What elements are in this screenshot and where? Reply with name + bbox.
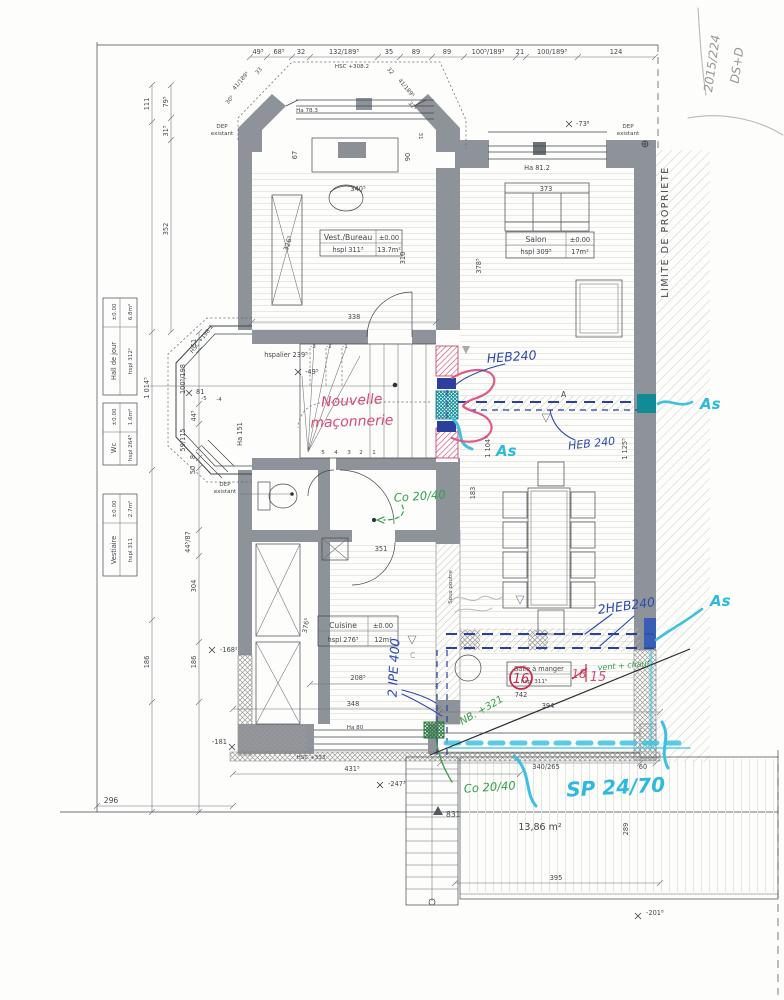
dim-label: 60 — [639, 763, 647, 771]
room-area: 2.7m² — [127, 501, 134, 518]
room-hspl: hspl 309⁵ — [521, 248, 552, 256]
dep-label: DEP — [622, 124, 634, 130]
note-new-masonry-1: Nouvelle — [321, 391, 383, 410]
dim-label: 100⁵/189³ — [472, 48, 505, 56]
room-box-bureau: Vest./Bureau ±0.00 hspl 311³ 13.7m² — [320, 230, 402, 256]
spot-level: -247³ — [388, 780, 406, 788]
dim-label: 1 104⁵ — [484, 436, 492, 458]
dim-label: 1 125⁵ — [621, 438, 629, 460]
dim-label: 31 — [417, 132, 423, 140]
dim-label: 378⁵ — [475, 258, 483, 274]
dim-label: 340/265 — [532, 763, 559, 771]
dim-label: 394 — [542, 702, 555, 710]
room-name: Salon — [525, 235, 546, 244]
room-area: 1.6m² — [127, 409, 134, 426]
spot-level: 81 — [196, 388, 204, 396]
dim-label: 348 — [347, 700, 360, 708]
room-area: 6.8m² — [127, 304, 134, 321]
dim-label: 89 — [443, 48, 451, 56]
dim-label: 296 — [104, 796, 119, 805]
room-area: 17m² — [571, 248, 589, 256]
dim-label: 376⁵ — [301, 617, 312, 634]
dep-label: existant — [617, 131, 640, 137]
dim-label: 79⁵ — [162, 96, 170, 107]
note-red-16: 16 — [513, 672, 530, 687]
height-label: Ha 151 — [236, 422, 244, 446]
dim-label: 183 — [469, 487, 477, 500]
room-box-vestiaire: Vestiaire hspl 311 ±0.00 2.7m² — [103, 494, 137, 576]
floor-plan-drawing: LIMITE DE PROPRIETE — [0, 0, 784, 1000]
spot-level: -73⁸ — [576, 120, 590, 128]
dim-label: 44⁵ — [190, 410, 198, 421]
room-level: ±0.00 — [112, 500, 118, 518]
marker-letter: C — [410, 651, 415, 660]
dim-label: 30⁵ — [224, 94, 235, 106]
dim-label: 310 — [399, 252, 407, 265]
room-hspl: hspl 311³ — [333, 246, 364, 254]
dim-label: 8 — [189, 455, 197, 459]
dim-label: 1 014⁵ — [143, 377, 151, 399]
staircase — [150, 344, 436, 458]
stair-number: -2 — [326, 344, 332, 350]
room-level: ±0.00 — [570, 236, 590, 244]
dim-label: 289 — [622, 823, 630, 836]
marker-letter: A — [561, 390, 567, 399]
spot-level: -181 — [212, 738, 227, 746]
dep-label: DEP — [216, 124, 228, 130]
dim-label: 351 — [375, 545, 388, 553]
dim-label: 338 — [348, 313, 361, 321]
stair-number: 1 — [372, 450, 376, 456]
dim-label: 208⁵ — [350, 674, 366, 682]
room-level: ±0.00 — [112, 303, 118, 321]
height-label: Ha 80 — [347, 725, 364, 731]
stair-number: 2 — [359, 450, 363, 456]
spot-level: 831 — [446, 810, 461, 819]
dim-label: 32⁵ — [406, 100, 417, 112]
dim-label: 32 — [385, 67, 394, 76]
dim-label: 742 — [515, 691, 528, 699]
room-level: ±0.00 — [379, 234, 399, 242]
stair-number: -5 — [201, 396, 207, 402]
room-hspl: hspl 312¹ — [127, 348, 134, 374]
stair-number: -4 — [216, 397, 222, 403]
room-box-hall: Hall de jour hspl 312¹ ±0.00 6.8m² — [103, 298, 137, 395]
dim-label: 21 — [516, 48, 524, 56]
dim-label: 100/189³ — [537, 48, 567, 56]
corner-ref-note: 2015/224 — [701, 34, 723, 93]
note-red-15: 15 — [590, 670, 607, 685]
dim-label: 59/115 — [179, 428, 187, 451]
dep-label: existant — [214, 489, 237, 495]
room-name: Vestiaire — [110, 536, 118, 564]
dim-label: 340⁵ — [350, 185, 366, 193]
terrace-area-label: 13,86 m² — [518, 822, 561, 833]
dim-label: 124 — [610, 48, 623, 56]
dim-label: 132/189⁵ — [329, 48, 359, 56]
room-level: ±0.00 — [373, 622, 393, 630]
dim-label: 31⁵ — [162, 125, 170, 136]
dim-label: 50 — [189, 466, 197, 474]
dep-label: DEP — [219, 482, 231, 488]
spot-level: -201⁸ — [646, 909, 664, 917]
dim-label: 111 — [143, 98, 151, 111]
dim-label: 373 — [540, 185, 553, 193]
note-as-2: As — [699, 395, 721, 413]
dep-label: existant — [211, 131, 234, 137]
room-name: Cuisine — [329, 621, 357, 630]
note-new-masonry-2: maçonnerie — [310, 413, 394, 432]
dim-label: 352 — [162, 223, 170, 236]
note-2ipe400: 2 IPE 400 — [384, 638, 402, 698]
height-label: HSC +308.2 — [335, 64, 369, 70]
dim-label: 89 — [412, 48, 420, 56]
room-hspl: hspl 264⁵ — [127, 435, 134, 461]
dim-label: 100⁵/198 — [179, 364, 187, 394]
property-limit-label: LIMITE DE PROPRIETE — [660, 166, 671, 298]
room-name: Wc — [110, 443, 118, 454]
new-masonry-strip — [436, 344, 458, 462]
spot-level: -49⁵ — [305, 368, 319, 376]
dim-label: 32 — [297, 48, 305, 56]
height-label: HSC +333 — [297, 755, 326, 761]
stair-number: -3 — [310, 344, 316, 350]
note-as-1: As — [495, 442, 517, 460]
dim-label: 41/189⁵ — [231, 70, 250, 91]
height-label: Ha 81.2 — [524, 164, 550, 172]
room-level: ±0.00 — [112, 408, 118, 426]
stair-number: 4 — [334, 450, 338, 456]
stair-number: 5 — [321, 450, 325, 456]
room-name: Hall de jour — [110, 342, 118, 380]
dim-label: 35 — [385, 48, 393, 56]
room-hspl: hspl 311 — [128, 538, 134, 562]
dim-label: 395 — [550, 874, 563, 882]
height-label: Ha 78.3 — [296, 108, 318, 114]
stair-number: -1 — [342, 344, 348, 350]
dim-label: 41/189⁵ — [396, 77, 415, 98]
dim-label: 304 — [190, 580, 198, 593]
corner-initials-note: DS+D — [728, 47, 747, 85]
dim-label: 90 — [404, 153, 412, 161]
dim-label: 44⁵/87 — [184, 531, 192, 553]
heb-column-mark — [437, 421, 456, 432]
dim-label: 67 — [291, 151, 299, 159]
spot-level: -168² — [220, 646, 238, 654]
dim-label: 431⁵ — [344, 765, 360, 773]
stair-number: 3 — [347, 450, 351, 456]
dim-label: 68⁵ — [273, 48, 284, 56]
dim-label: 49⁵ — [252, 48, 263, 56]
beam-label: Sous poutre — [448, 570, 454, 604]
height-label: hspalier 239⁵ — [264, 351, 308, 359]
room-box-wc: Wc hspl 264⁵ ±0.00 1.6m² — [103, 403, 137, 465]
dim-label: 33 — [255, 66, 264, 76]
note-as-3: As — [709, 592, 731, 610]
room-hspl: hspl 276⁵ — [328, 636, 359, 644]
room-area: 13.7m² — [377, 246, 401, 254]
floor-plan-scan: LIMITE DE PROPRIETE — [0, 0, 784, 1000]
dim-label: 186 — [143, 656, 151, 669]
room-name: Vest./Bureau — [324, 233, 372, 242]
dim-label: 186 — [190, 656, 198, 669]
